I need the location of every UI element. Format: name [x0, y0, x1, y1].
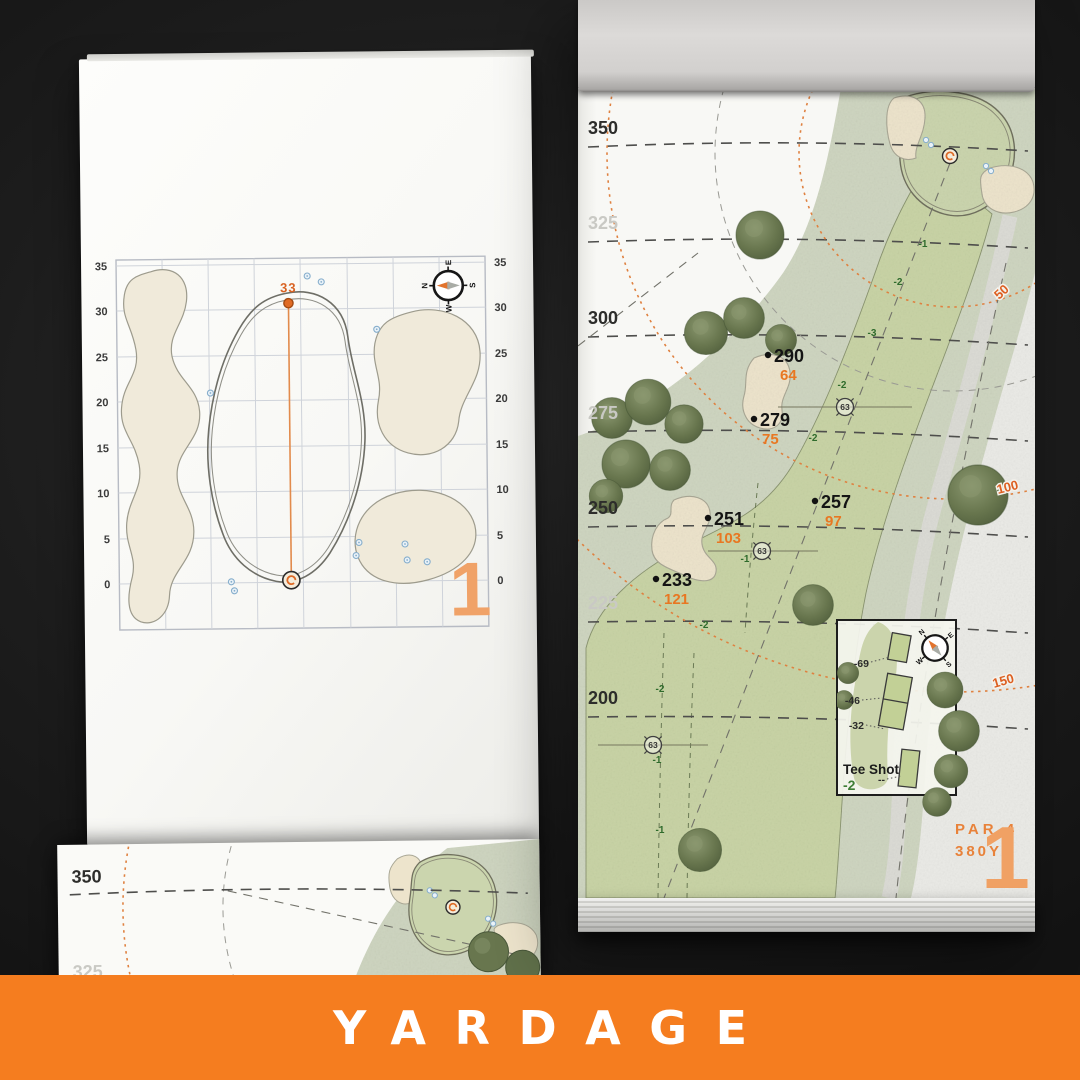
tee-shot-total: -2: [843, 777, 856, 793]
distance-label: 325: [588, 213, 618, 233]
axis-tick: 0: [497, 575, 503, 587]
slope-label: -3: [868, 328, 877, 339]
carry-distance: 257: [821, 492, 851, 512]
slope-label: -2: [809, 433, 818, 444]
distance-label: 350: [588, 118, 618, 138]
bunker: [374, 309, 481, 455]
axis-tick: 35: [494, 257, 506, 269]
tee-carry-label: -46: [845, 695, 860, 707]
slope-label: -2: [894, 277, 903, 288]
tee-box: [898, 749, 920, 788]
sprinkler-number: 63: [757, 546, 767, 556]
to-green-distance: 121: [664, 591, 689, 608]
distance-label: 250: [588, 498, 618, 518]
axis-tick: 25: [96, 352, 108, 364]
distance-label: 200: [588, 688, 618, 708]
compass-icon: N E S W: [420, 259, 478, 313]
front-of-green-marker: [446, 900, 460, 914]
axis-tick: 25: [495, 348, 507, 360]
to-green-distance: 64: [780, 367, 797, 384]
right-book: 350 325 300 275 250 225 200 50 100 150: [578, 0, 1035, 948]
slope-label: -1: [741, 554, 750, 565]
carry-distance: 279: [760, 410, 790, 430]
sprinkler-number: 63: [840, 402, 850, 412]
to-green-distance: 103: [716, 530, 741, 547]
tee-carry-label: -32: [849, 720, 864, 732]
slope-label: -1: [656, 825, 665, 836]
axis-tick: 20: [495, 393, 507, 405]
bunker: [120, 269, 202, 623]
front-of-green-marker: [943, 149, 958, 164]
sprinkler-number: 63: [648, 740, 658, 750]
distance-label: 275: [588, 403, 618, 423]
slope-label: -2: [700, 620, 709, 631]
partial-hole-map: 350 325: [57, 839, 541, 985]
pin-group: 33: [280, 280, 300, 589]
hole-number: 1: [449, 547, 492, 632]
axis-tick: 0: [104, 579, 110, 591]
slope-label: -1: [919, 239, 928, 250]
axis-tick: 15: [97, 443, 109, 455]
compass-letter-w: W: [444, 304, 453, 312]
carry-distance: 233: [662, 570, 692, 590]
slope-label: -2: [838, 380, 847, 391]
axis-tick: 20: [96, 397, 108, 409]
to-green-distance: 75: [762, 431, 779, 448]
green-detail-map: 35 30 25 20 15 10 5 0 35 30 25 20 15 10 …: [79, 55, 539, 846]
slope-label: -2: [656, 684, 665, 695]
slope-label: -1: [653, 755, 662, 766]
axis-tick: 35: [95, 261, 107, 273]
tee-carry-label: -69: [854, 658, 869, 670]
compass-letter-s: S: [468, 282, 477, 288]
distance-label: 300: [588, 308, 618, 328]
axis-tick: 10: [97, 488, 109, 500]
axis-tick: 30: [95, 306, 107, 318]
tee-shot-title: Tee Shot: [843, 762, 900, 777]
flipped-page: [578, 0, 1035, 92]
banner-label: YARDAGE: [304, 1001, 775, 1055]
axis-tick: 15: [496, 439, 508, 451]
distance-label: 225: [588, 593, 618, 613]
pin-marker: [284, 299, 293, 308]
carry-distance: 290: [774, 346, 804, 366]
axis-tick: 30: [494, 302, 506, 314]
axis-tick: 10: [496, 484, 508, 496]
bottom-book-page: 350 325: [57, 839, 541, 985]
carry-distance: 251: [714, 509, 744, 529]
hole-number: 1: [981, 808, 1030, 898]
green-outline: [206, 291, 366, 583]
front-of-green-marker: [283, 572, 300, 589]
compass-letter-n: N: [420, 283, 429, 289]
hole-map-page: 350 325 300 275 250 225 200 50 100 150: [578, 88, 1035, 898]
page-stack-edge: [578, 898, 1035, 932]
to-green-distance: 97: [825, 513, 842, 530]
axis-tick: 5: [497, 530, 503, 542]
hole-map: 350 325 300 275 250 225 200 50 100 150: [578, 88, 1035, 898]
greenside-bunkers: [120, 266, 483, 623]
distance-label: 350: [71, 866, 101, 886]
scene: 35 30 25 20 15 10 5 0 35 30 25 20 15 10 …: [0, 0, 1080, 1080]
axis-tick: 5: [104, 534, 110, 546]
sprinkler-63-marker: 63: [644, 736, 661, 753]
tee-box: [888, 633, 911, 663]
sprinkler-63-marker: 63: [836, 398, 853, 415]
compass-letter-e: E: [444, 259, 453, 265]
green-detail-page: 35 30 25 20 15 10 5 0 35 30 25 20 15 10 …: [79, 55, 539, 846]
sprinkler-63-marker: 63: [753, 542, 770, 559]
pin-distance-label: 33: [280, 280, 297, 295]
title-banner: YARDAGE: [0, 975, 1080, 1080]
